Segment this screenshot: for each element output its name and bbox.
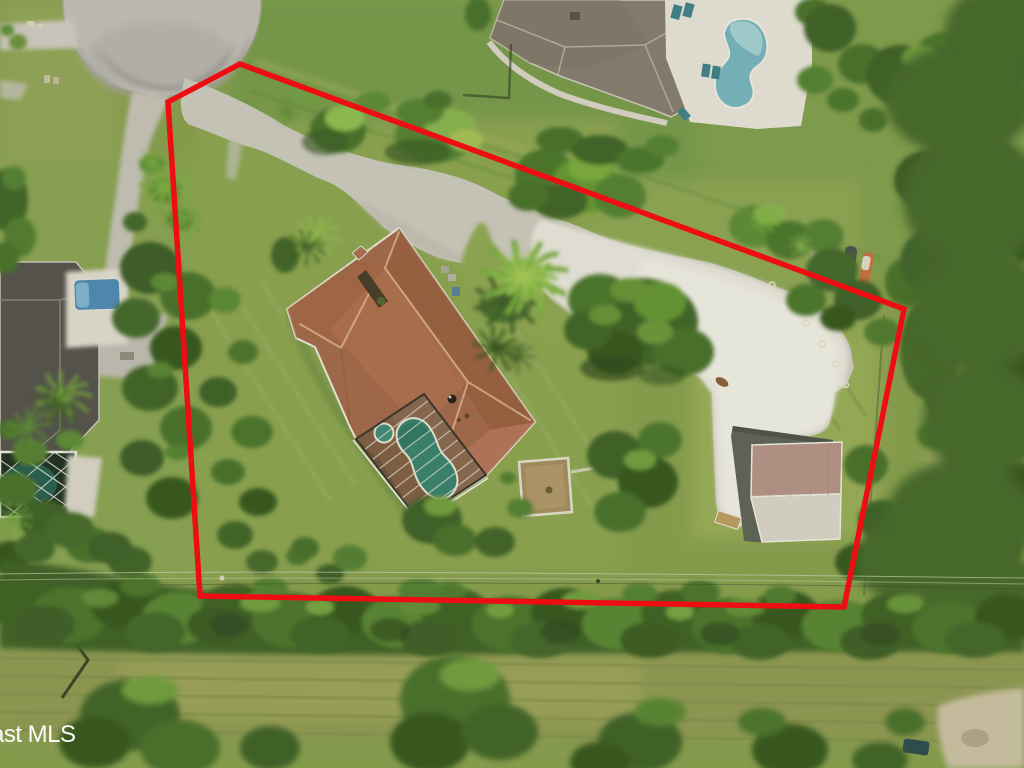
svg-text:ast MLS: ast MLS [0, 721, 76, 748]
